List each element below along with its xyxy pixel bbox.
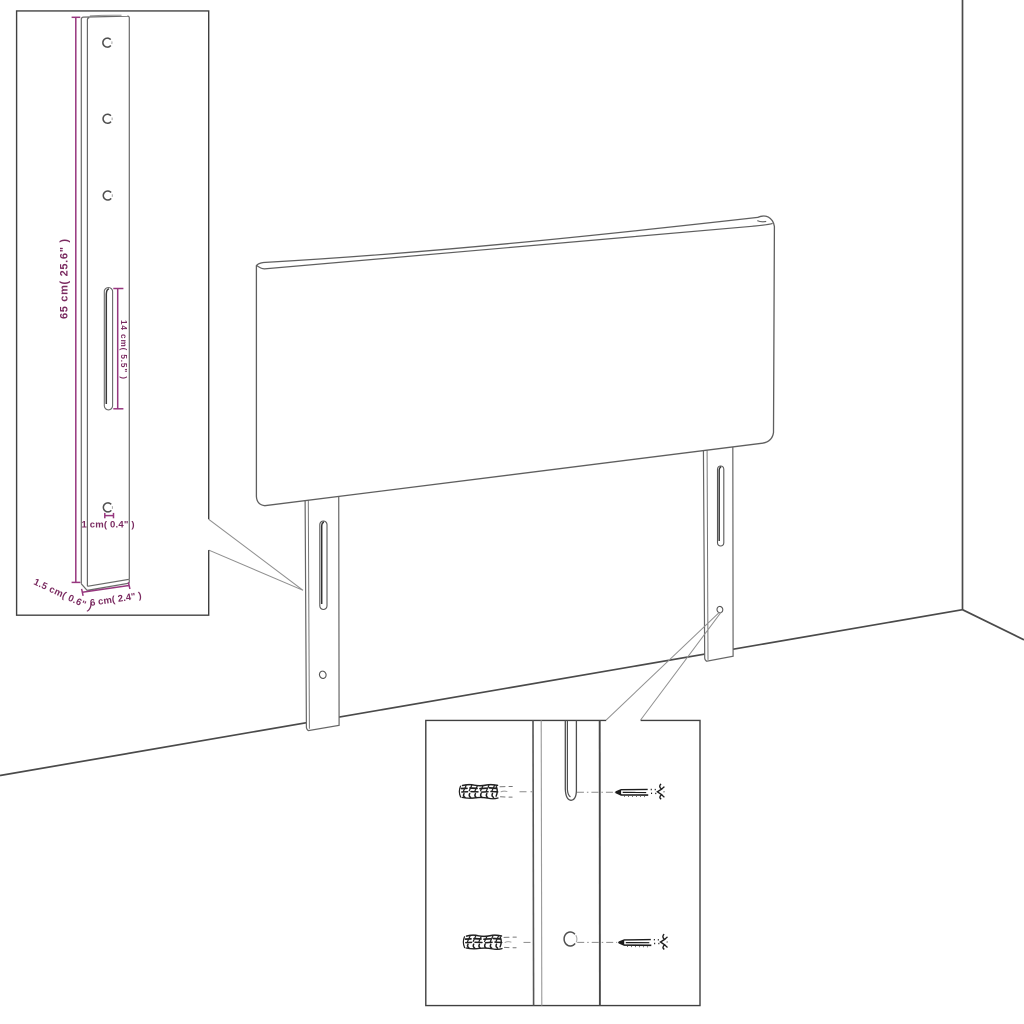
svg-text:1 cm( 0.4" ): 1 cm( 0.4" ) bbox=[82, 520, 135, 531]
svg-text:65 cm( 25.6" ): 65 cm( 25.6" ) bbox=[59, 239, 71, 319]
svg-text:14 cm( 5.5" ): 14 cm( 5.5" ) bbox=[119, 320, 128, 379]
